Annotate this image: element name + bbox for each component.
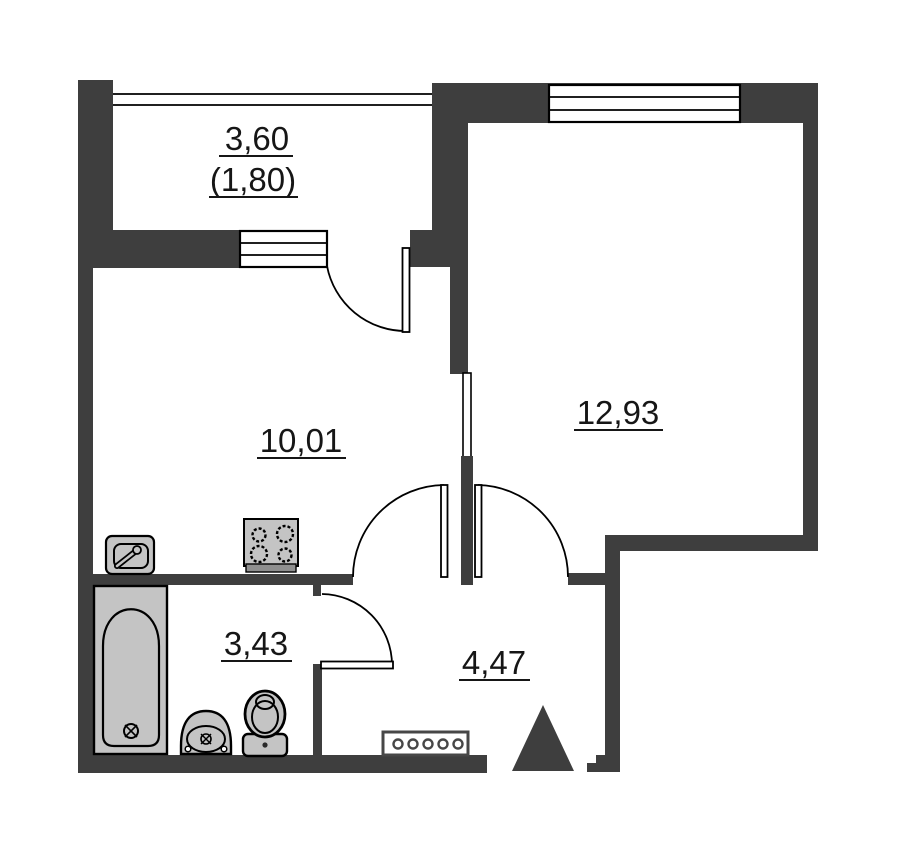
wall-segment [313,583,321,596]
wall-segment [313,664,322,756]
washbasin-icon [181,711,231,754]
door-leaf [441,485,448,577]
wall-segment [568,573,605,585]
toilet-icon [243,691,287,756]
kitchen-area-label: 10,01 [260,422,343,459]
partition-wall [463,373,471,468]
kitchen-balcony-window [240,231,327,267]
wall-segment [80,574,353,585]
door-swing-arc [322,594,392,665]
stove-icon [244,519,298,572]
balcony-area-label: 3,60 [225,120,289,157]
radiator-icon [383,732,468,755]
wall-segment [605,551,620,772]
wall-segment [450,266,468,374]
door-leaf [321,662,393,669]
wall-segment [78,268,93,773]
doors [321,248,568,669]
wall-segment [605,535,818,551]
wall-segment [78,755,487,773]
kitchen-sink-icon [106,536,154,574]
balcony-coefficient-label: (1,80) [210,161,296,198]
bathtub-icon [94,586,167,754]
balcony-door [327,248,410,332]
living-room-window [549,85,740,122]
walls [78,80,818,773]
floor-plan-drawing: 3,60 (1,80) 10,01 12,93 3,43 4,47 [0,0,900,850]
wall-notch [587,755,596,763]
wall-segment [93,230,240,268]
bathroom-area-label: 3,43 [224,625,288,662]
door-swing-arc [478,485,568,577]
wall-segment [410,230,468,267]
balcony-glazing-window [113,93,432,106]
living-room-area-label: 12,93 [577,394,660,431]
door-leaf [403,248,410,332]
bathroom-door [321,594,393,669]
door-swing-arc [327,266,406,331]
hallway-area-label: 4,47 [462,644,526,681]
wall-segment [803,83,818,551]
entrance-arrow-icon [512,705,574,771]
kitchen-door [353,485,448,577]
door-leaf [475,485,482,577]
floor-plan-canvas: 3,60 (1,80) 10,01 12,93 3,43 4,47 [0,0,900,850]
living-room-door [475,485,568,577]
wall-segment [461,456,473,585]
door-swing-arc [353,485,444,577]
